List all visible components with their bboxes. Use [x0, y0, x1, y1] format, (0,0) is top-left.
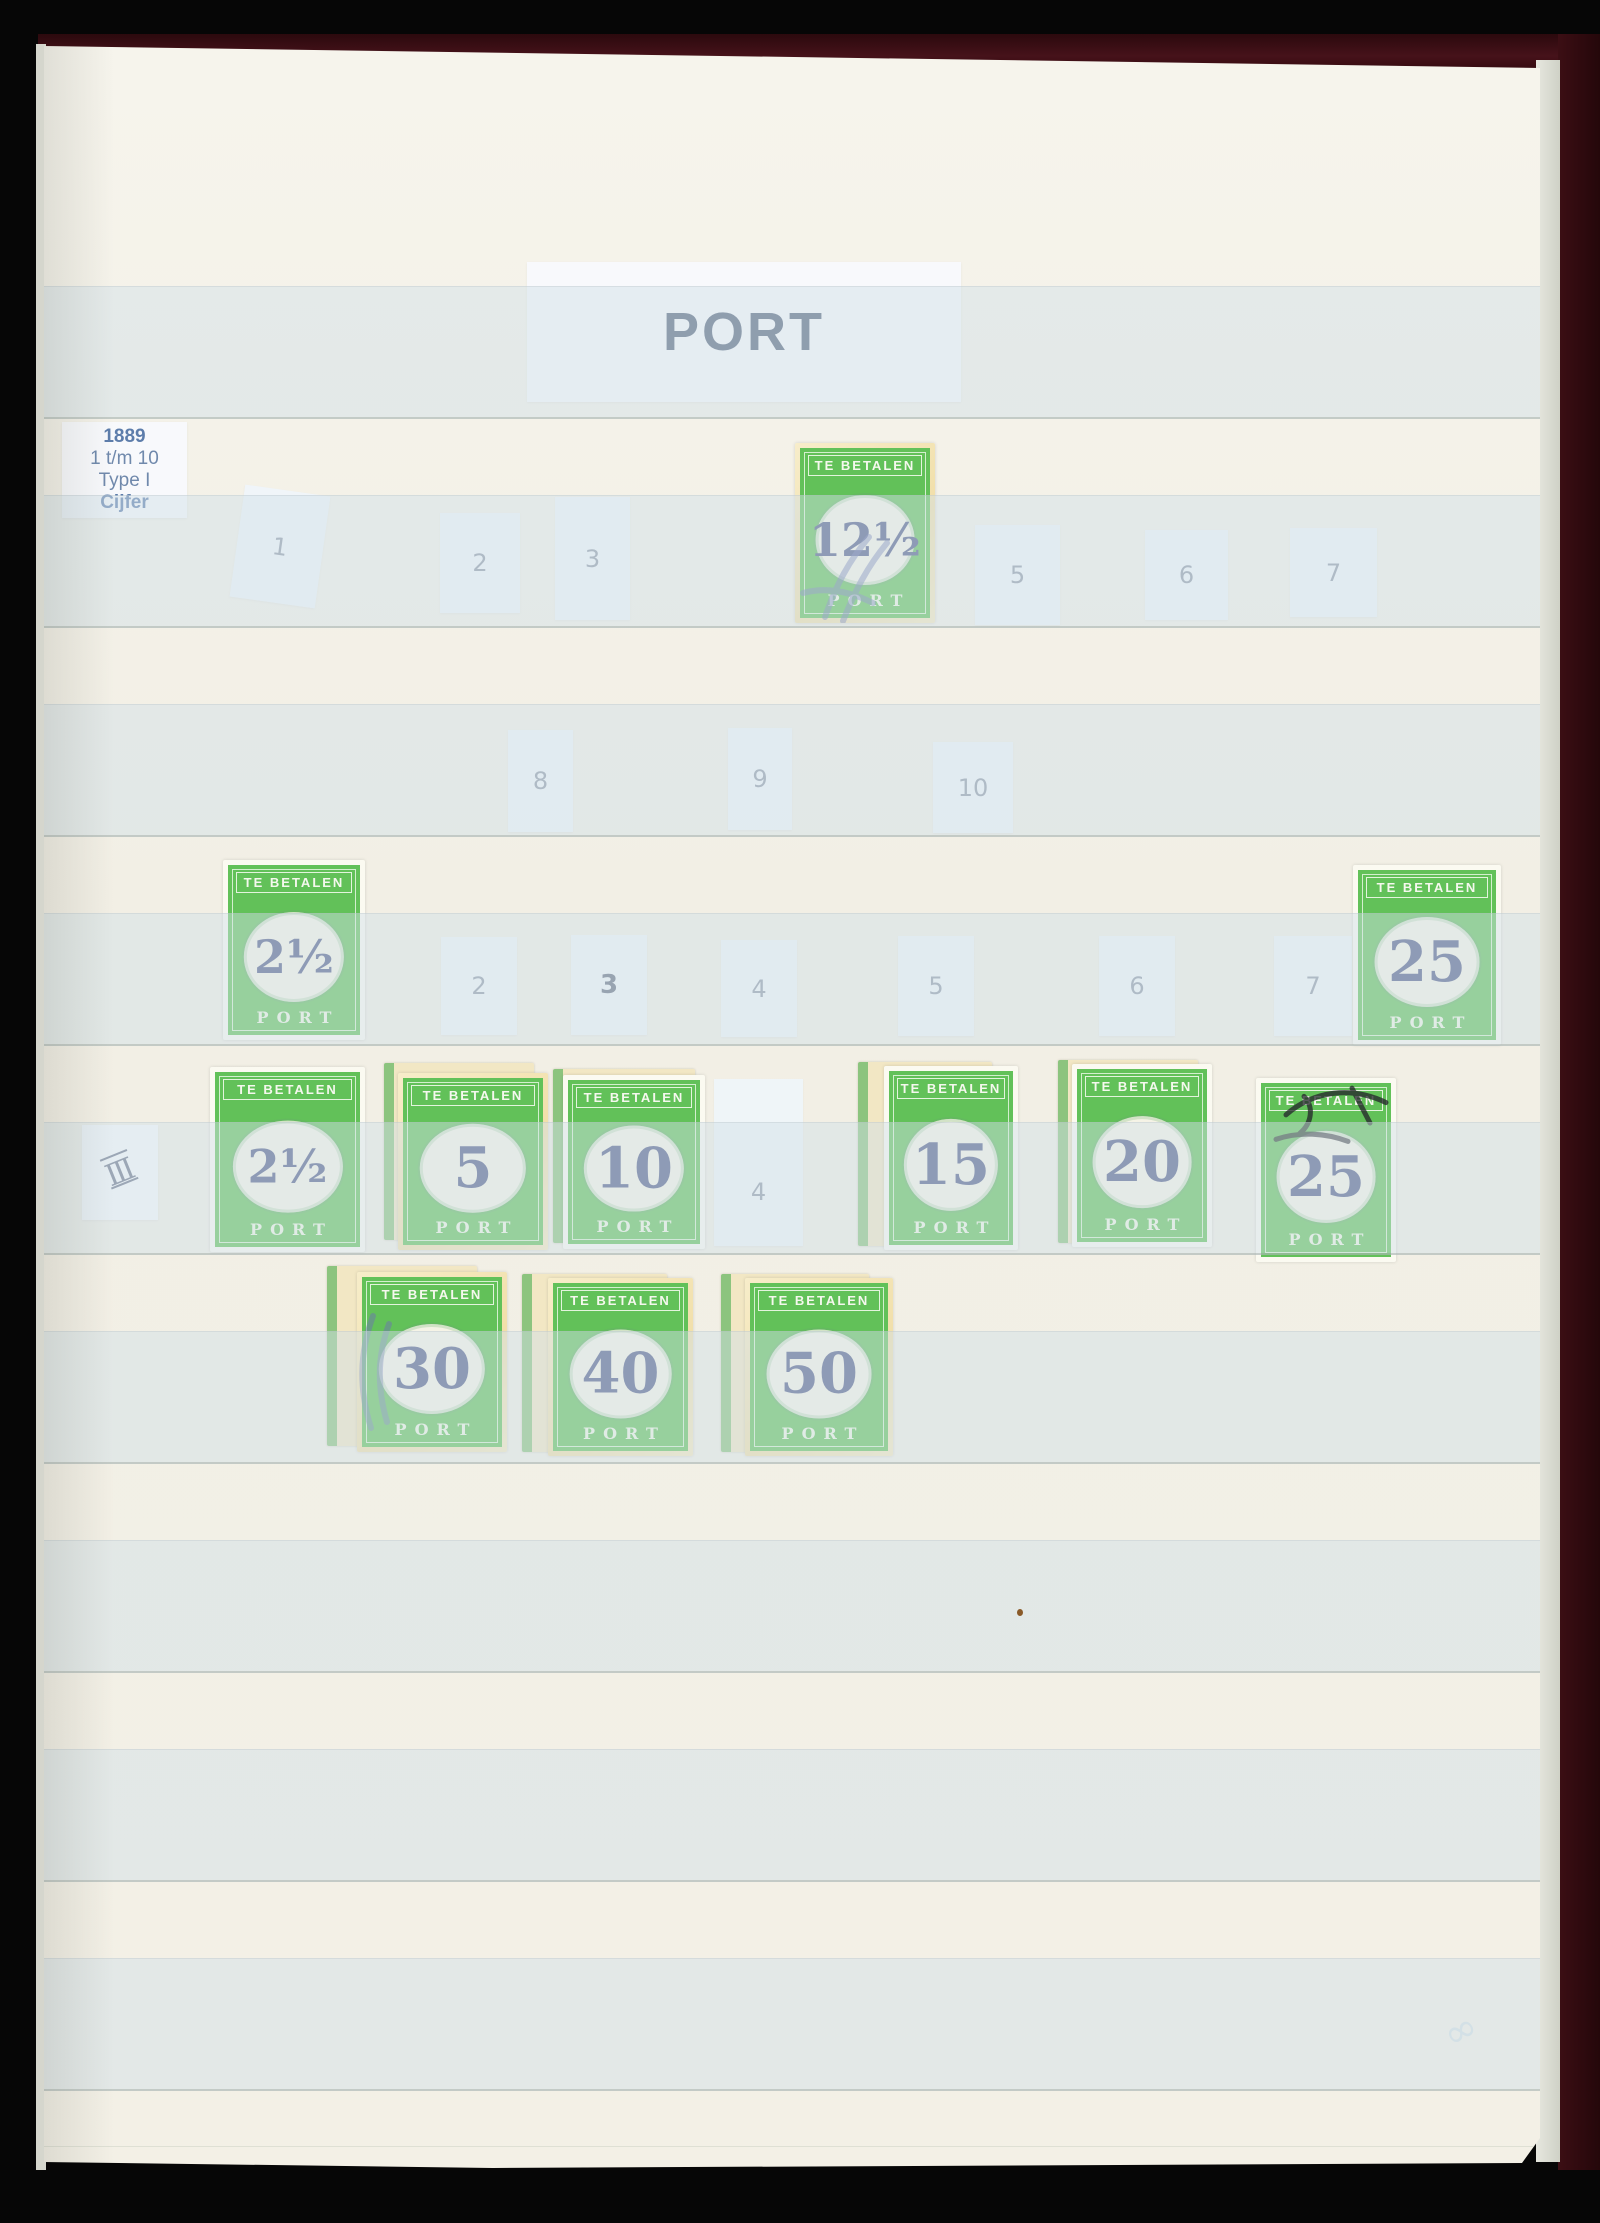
scanned-album-photo: PORT 1889 1 t/m 10 Type I Cijfer Ⅲ 12356…	[0, 0, 1600, 2223]
pocket-film-strip	[44, 913, 1540, 1046]
pocket-film-strip	[44, 704, 1540, 837]
pocket-film-layer	[44, 46, 1540, 2168]
strip-edge-hairline	[44, 2146, 1540, 2147]
pocket-film-strip	[44, 1122, 1540, 1255]
album-cover-edge-right	[1558, 34, 1600, 2170]
pocket-film-strip	[44, 495, 1540, 628]
pocket-film-strip	[44, 1331, 1540, 1464]
pocket-film-strip	[44, 1958, 1540, 2091]
pocket-film-strip	[44, 1540, 1540, 1673]
pocket-film-strip	[44, 286, 1540, 419]
pocket-film-strip	[44, 1749, 1540, 1882]
binding-gutter-shadow	[44, 46, 114, 2168]
stockbook-page: PORT 1889 1 t/m 10 Type I Cijfer Ⅲ 12356…	[44, 46, 1540, 2168]
paper-speck	[1017, 1609, 1023, 1616]
